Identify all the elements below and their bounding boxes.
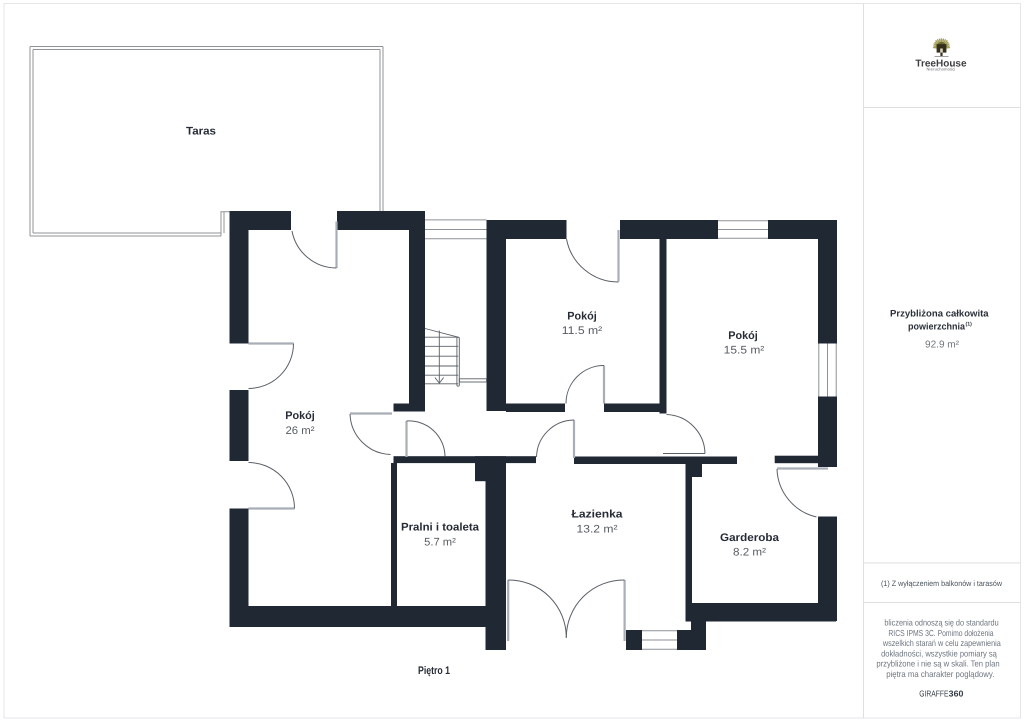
svg-text:Nieruchomości: Nieruchomości [926, 66, 955, 71]
svg-text:Pokój: Pokój [728, 330, 758, 342]
svg-text:powierzchnia: powierzchnia [908, 321, 966, 332]
svg-text:Przybliżona całkowita: Przybliżona całkowita [890, 309, 989, 320]
svg-text:Pokój: Pokój [285, 410, 315, 422]
svg-text:11.5 m²: 11.5 m² [562, 325, 603, 337]
svg-text:dokładności, wszystkie pomiary: dokładności, wszystkie pomiary są [881, 648, 997, 658]
svg-text:Garderoba: Garderoba [720, 532, 780, 544]
svg-text:przybliżone i nie są w skali.: przybliżone i nie są w skali. Ten plan [876, 659, 999, 669]
svg-text:Łazienka: Łazienka [572, 509, 624, 521]
svg-text:Pralni i toaleta: Pralni i toaleta [401, 522, 480, 534]
svg-text:Taras: Taras [186, 126, 216, 138]
svg-text:15.5 m²: 15.5 m² [724, 345, 765, 357]
svg-text:GIRAFFE: GIRAFFE [919, 689, 949, 699]
svg-text:wszelkich starań w celu zapewn: wszelkich starań w celu zapewnienia [882, 638, 1001, 648]
svg-text:Piętro 1: Piętro 1 [418, 665, 450, 677]
svg-text:(1): (1) [966, 322, 973, 328]
svg-text:26 m²: 26 m² [286, 425, 315, 437]
svg-text:13.2 m²: 13.2 m² [577, 524, 618, 536]
svg-text:bliczenia odnoszą się do stand: bliczenia odnoszą się do standardu [884, 618, 998, 628]
svg-text:5.7 m²: 5.7 m² [424, 537, 456, 549]
svg-text:piętra ma charakter poglądowy.: piętra ma charakter poglądowy. [886, 669, 994, 679]
svg-text:RICS IPMS 3C. Pomimo dołożenia: RICS IPMS 3C. Pomimo dołożenia [888, 628, 993, 638]
svg-text:Pokój: Pokój [567, 311, 597, 323]
svg-text:(1) Z wyłączeniem balkonów i t: (1) Z wyłączeniem balkonów i tarasów [881, 579, 1002, 588]
svg-text:360: 360 [949, 689, 964, 699]
svg-text:8.2 m²: 8.2 m² [733, 547, 766, 559]
svg-text:92.9 m²: 92.9 m² [925, 340, 960, 351]
